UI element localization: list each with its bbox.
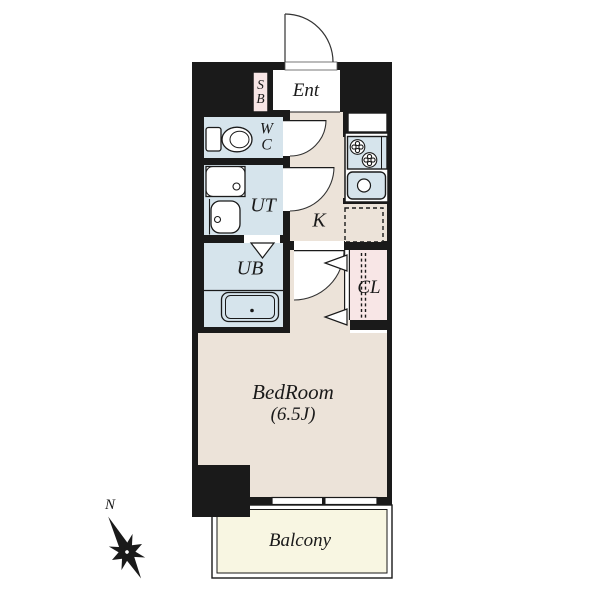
stove-fixture <box>348 137 388 170</box>
utility-label: UT <box>250 196 276 217</box>
corner-pillar <box>192 465 250 517</box>
compass-north-label: N <box>105 498 115 514</box>
toilet-fixture <box>206 127 252 152</box>
kitchen-window <box>348 113 387 132</box>
sink-fixture <box>348 172 386 199</box>
basin-fixture <box>210 199 241 235</box>
closet-label: CL <box>357 278 380 298</box>
bath-floor <box>204 243 283 327</box>
kitchen-label: K <box>312 211 325 232</box>
balcony-window <box>272 497 377 505</box>
kitchen-counter <box>345 133 388 202</box>
balcony-label: Balcony <box>269 531 331 551</box>
washer-pan-fixture <box>206 166 245 196</box>
entrance-label: Ent <box>293 81 319 101</box>
compass-rose <box>84 504 164 591</box>
toilet-label: W C <box>260 122 273 155</box>
floor-plan: S B Ent W C UT UB K CL BedRoom (6.5J) Ba… <box>0 0 600 600</box>
refrigerator-space <box>345 208 383 242</box>
bedroom-label: BedRoom <box>252 381 334 403</box>
bedroom-size-label: (6.5J) <box>271 405 316 425</box>
shoe-box-label: S B <box>256 78 264 106</box>
entrance-door-swing <box>285 14 337 70</box>
bath-label: UB <box>237 259 264 280</box>
